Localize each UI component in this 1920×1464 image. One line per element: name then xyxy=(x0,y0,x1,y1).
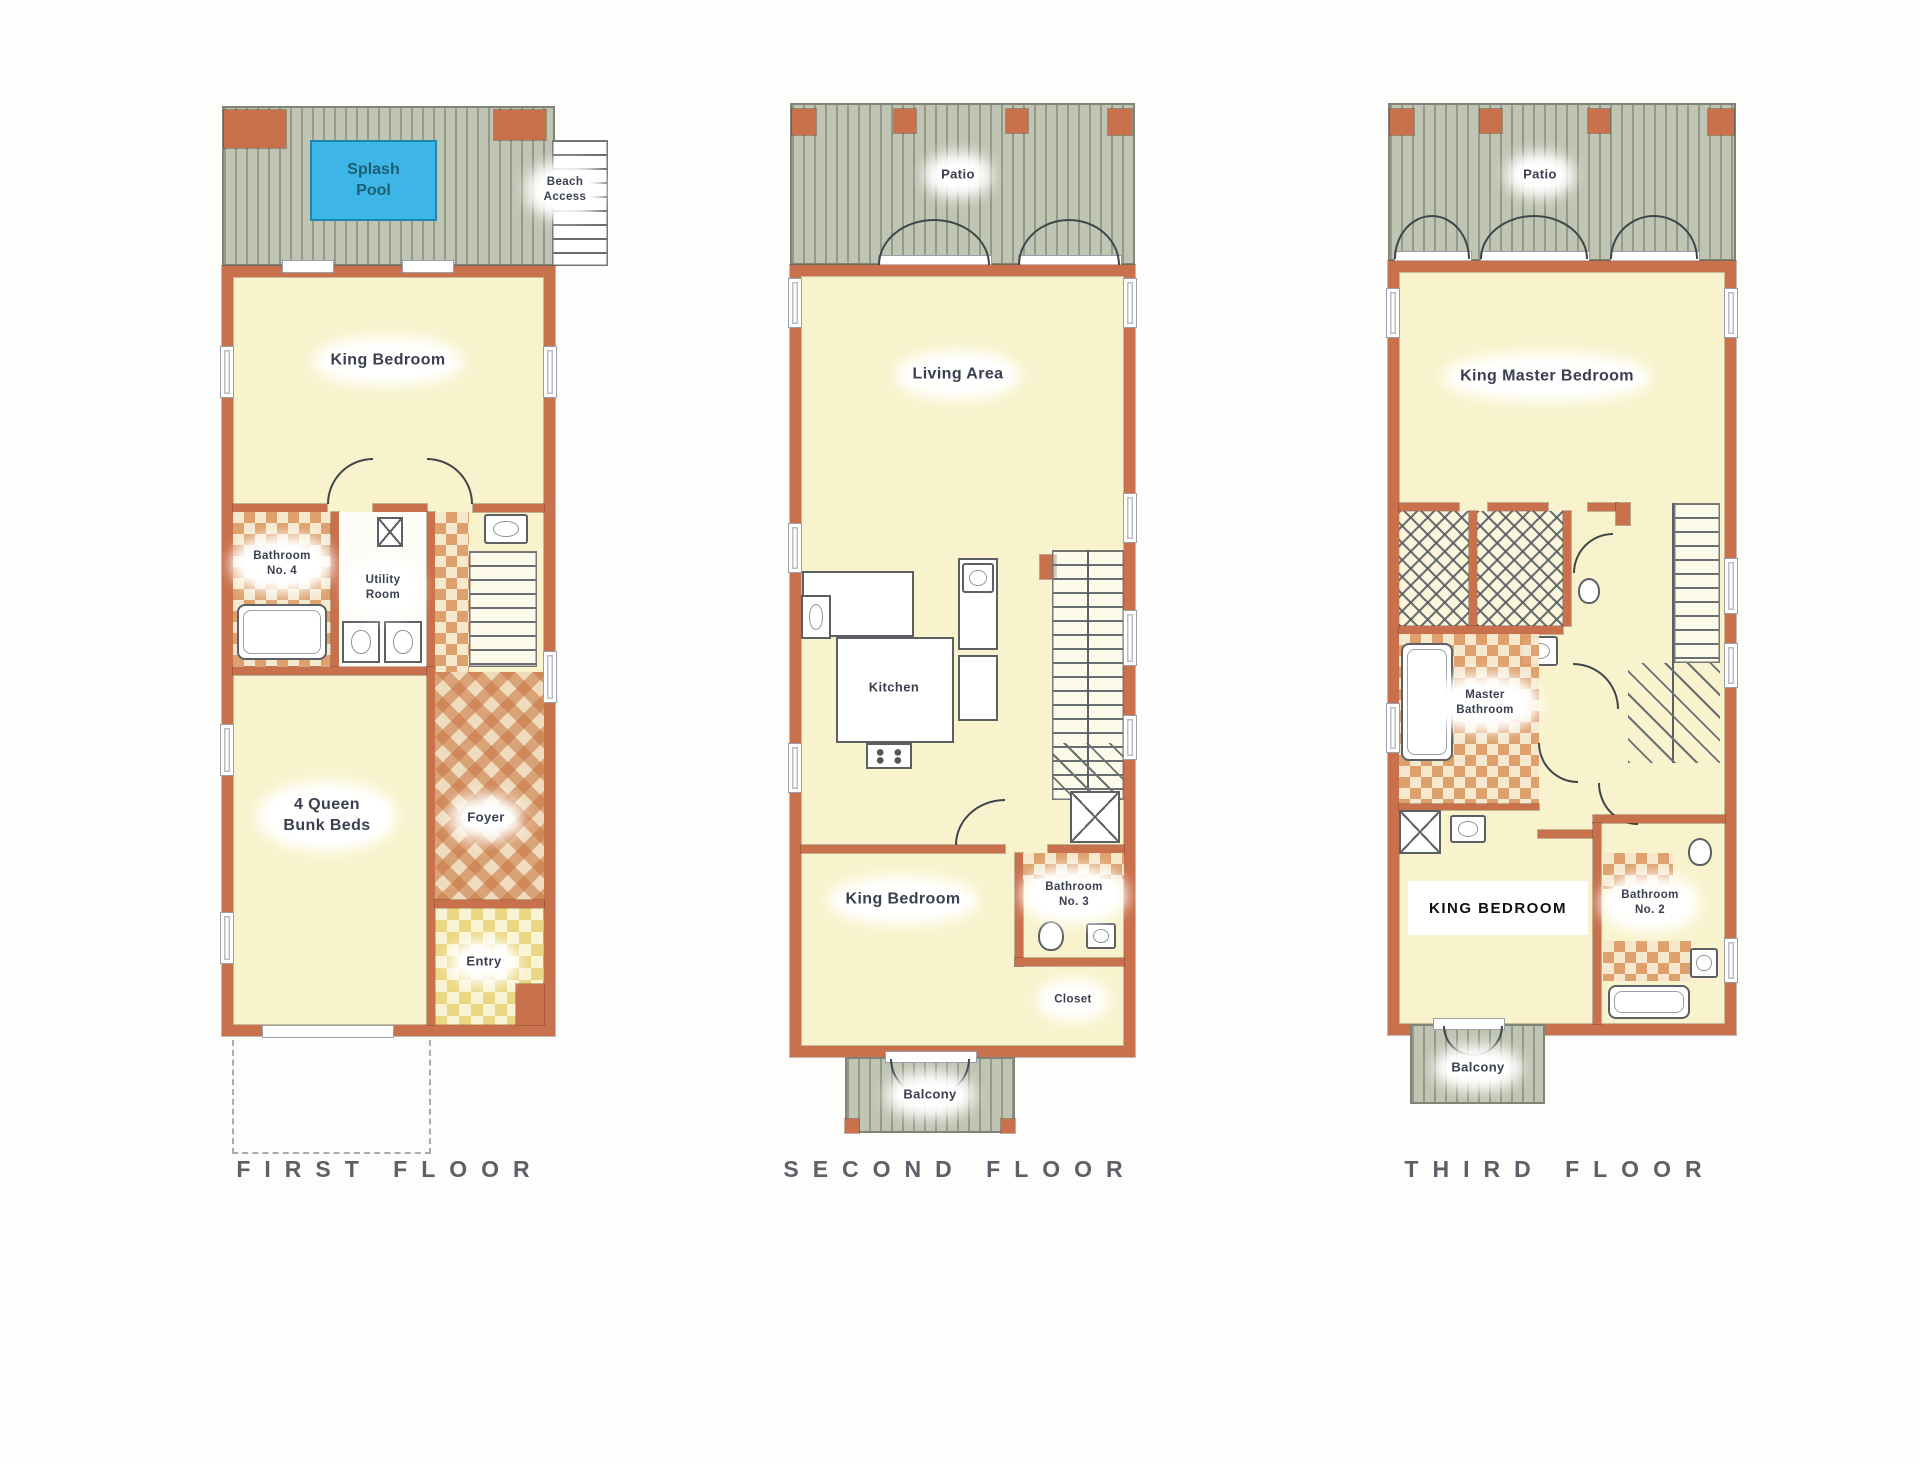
staircase xyxy=(469,551,537,667)
interior-wall xyxy=(1469,511,1477,626)
third-floor-plan: Patio King Master Bedroom Master Bathroo xyxy=(1388,103,1736,1137)
driveway-outline xyxy=(232,1040,431,1154)
patio-label: Patio xyxy=(928,166,988,185)
dryer-icon xyxy=(384,621,422,663)
deck-post xyxy=(224,110,286,148)
first-floor-plan: Splash Pool Beach Access King Bedroom Ba… xyxy=(222,106,555,1036)
door-sill xyxy=(402,260,454,273)
interior-wall xyxy=(1593,815,1725,823)
deck-post xyxy=(792,109,816,135)
interior-wall xyxy=(1488,503,1548,511)
bathroom3-tiles xyxy=(1023,853,1124,879)
stair-winder xyxy=(1628,663,1720,763)
toilet-icon xyxy=(1578,578,1600,604)
range-icon xyxy=(866,743,912,769)
deck-post xyxy=(1006,109,1028,133)
king-bedroom3-label: KING BEDROOM xyxy=(1408,881,1588,935)
toilet-icon xyxy=(1688,838,1712,866)
interior-wall xyxy=(435,900,544,908)
interior-wall xyxy=(1538,830,1598,838)
window xyxy=(1123,715,1137,760)
interior-wall xyxy=(1588,503,1618,511)
interior-wall xyxy=(233,504,327,512)
window xyxy=(1123,278,1137,328)
bathtub xyxy=(237,604,327,660)
splash-pool: Splash Pool xyxy=(310,140,437,221)
closet-hangers xyxy=(1399,511,1469,626)
bathtub xyxy=(1608,985,1690,1019)
living-area-label: Living Area xyxy=(878,364,1038,387)
bath-sink xyxy=(1450,815,1486,843)
window xyxy=(1724,643,1738,688)
stair-post xyxy=(1616,503,1630,525)
third-floor-title: THIRD FLOOR xyxy=(1360,1156,1760,1183)
shower-icon xyxy=(1399,810,1441,854)
deck-post xyxy=(1708,109,1734,135)
balcony-post xyxy=(1001,1119,1015,1133)
deck-post xyxy=(1390,109,1414,135)
window xyxy=(1123,610,1137,666)
interior-wall xyxy=(427,667,435,1025)
interior-wall xyxy=(473,504,544,512)
patio3-label: Patio xyxy=(1510,166,1570,185)
corner-block xyxy=(516,984,544,1025)
balcony-post xyxy=(845,1119,859,1133)
door-sill xyxy=(282,260,334,273)
interior-wall xyxy=(1563,511,1571,626)
bathroom2-tiles xyxy=(1603,853,1673,889)
window xyxy=(1724,288,1738,338)
deck-post xyxy=(1480,109,1502,133)
window xyxy=(1123,493,1137,543)
interior-wall xyxy=(1015,958,1124,966)
interior-wall xyxy=(801,845,1005,853)
fridge-icon xyxy=(801,595,831,639)
interior-wall xyxy=(427,512,435,667)
foyer-label: Foyer xyxy=(451,809,521,828)
closet-label: Closet xyxy=(1038,992,1108,1009)
splash-pool-label: Splash Pool xyxy=(334,160,414,202)
window xyxy=(543,346,557,398)
kitchen-cabinets xyxy=(958,655,998,721)
window xyxy=(1724,558,1738,614)
hall-tiles xyxy=(435,512,469,672)
bathroom2-label: Bathroom No. 2 xyxy=(1613,887,1687,919)
second-floor-plan: Patio Living Area Kitchen Ki xyxy=(790,103,1135,1137)
garage-opening xyxy=(262,1025,394,1038)
shower-icon xyxy=(1070,791,1120,843)
bath-sink xyxy=(1690,948,1718,978)
window xyxy=(1724,938,1738,983)
foyer-tiles xyxy=(435,672,544,900)
interior-wall xyxy=(1048,845,1124,853)
interior-wall xyxy=(1015,853,1023,966)
window xyxy=(220,724,234,776)
utility-label: Utility Room xyxy=(358,572,408,604)
first-floor-title: FIRST FLOOR xyxy=(190,1156,590,1183)
balcony-label: Balcony xyxy=(890,1086,970,1105)
interior-wall xyxy=(1399,503,1459,511)
window xyxy=(220,346,234,398)
bathroom4-label: Bathroom No. 4 xyxy=(244,548,320,580)
window xyxy=(788,743,802,793)
master-bath-label: Master Bathroom xyxy=(1443,687,1528,719)
interior-wall xyxy=(1399,626,1563,634)
interior-wall xyxy=(1593,823,1601,1024)
king-bedroom2-label: King Bedroom xyxy=(818,889,988,912)
king-bedroom-label: King Bedroom xyxy=(313,350,463,373)
window xyxy=(543,651,557,703)
interior-wall xyxy=(233,667,427,675)
toilet-icon xyxy=(1038,921,1064,951)
entry-label: Entry xyxy=(454,953,514,972)
window xyxy=(788,278,802,328)
bathroom3-label: Bathroom No. 3 xyxy=(1034,879,1114,911)
bathroom2-tiles xyxy=(1603,941,1691,981)
interior-wall xyxy=(373,504,427,512)
floorplan-canvas: Splash Pool Beach Access King Bedroom Ba… xyxy=(0,0,1920,1464)
master-bedroom-label: King Master Bedroom xyxy=(1417,366,1677,389)
kitchen-label: Kitchen xyxy=(849,679,939,698)
deck-post xyxy=(1588,109,1610,133)
shower-icon xyxy=(377,517,403,547)
deck-post xyxy=(1108,109,1132,135)
closet-hangers xyxy=(1477,511,1563,626)
bunk-room-label: 4 Queen Bunk Beds xyxy=(271,794,383,838)
window xyxy=(1386,288,1400,338)
second-floor-title: SECOND FLOOR xyxy=(760,1156,1160,1183)
staircase xyxy=(1674,503,1720,663)
window xyxy=(1386,703,1400,753)
deck-post xyxy=(894,109,916,133)
kitchen-sink xyxy=(962,563,994,593)
bath-sink xyxy=(1086,923,1116,949)
interior-wall xyxy=(331,512,339,667)
balcony3-label: Balcony xyxy=(1438,1059,1518,1078)
powder-sink xyxy=(484,514,528,544)
window xyxy=(788,523,802,573)
deck-post xyxy=(494,110,546,140)
washer-icon xyxy=(342,621,380,663)
window xyxy=(220,912,234,964)
beach-access-label: Beach Access xyxy=(539,174,591,206)
